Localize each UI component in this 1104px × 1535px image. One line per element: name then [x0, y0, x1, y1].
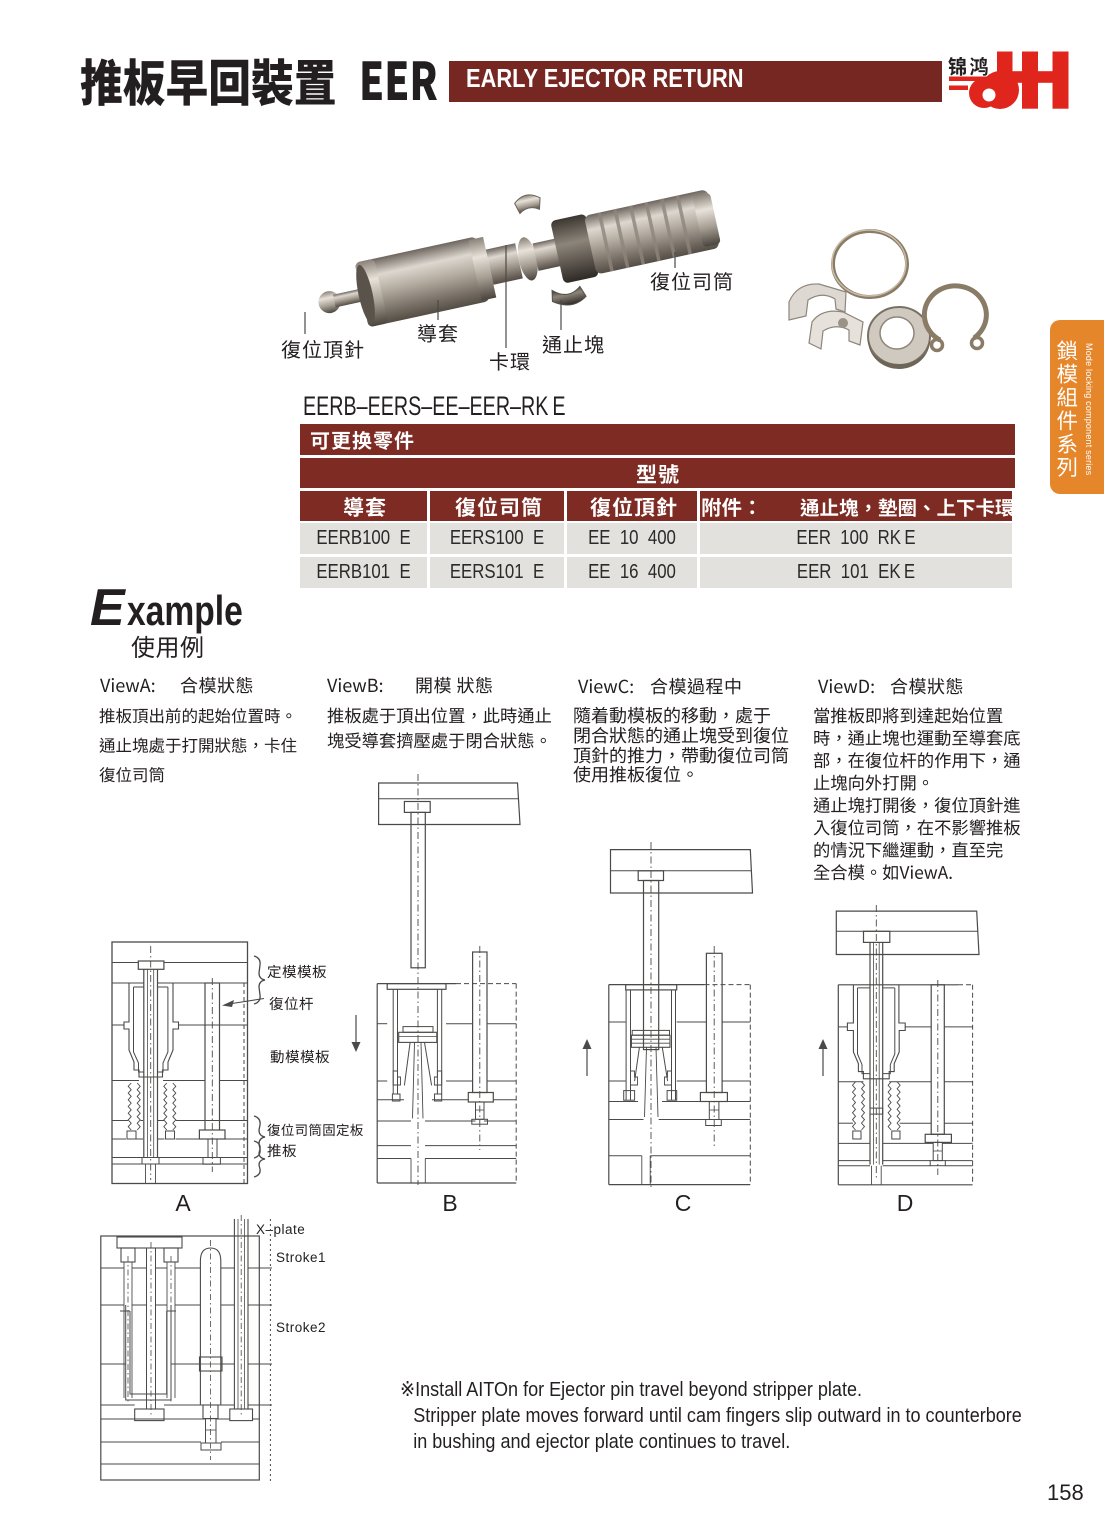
svg-text:B: B — [442, 1190, 457, 1216]
svg-text:D: D — [897, 1190, 914, 1216]
svg-text:C: C — [675, 1190, 692, 1216]
svg-text:A: A — [175, 1190, 191, 1216]
